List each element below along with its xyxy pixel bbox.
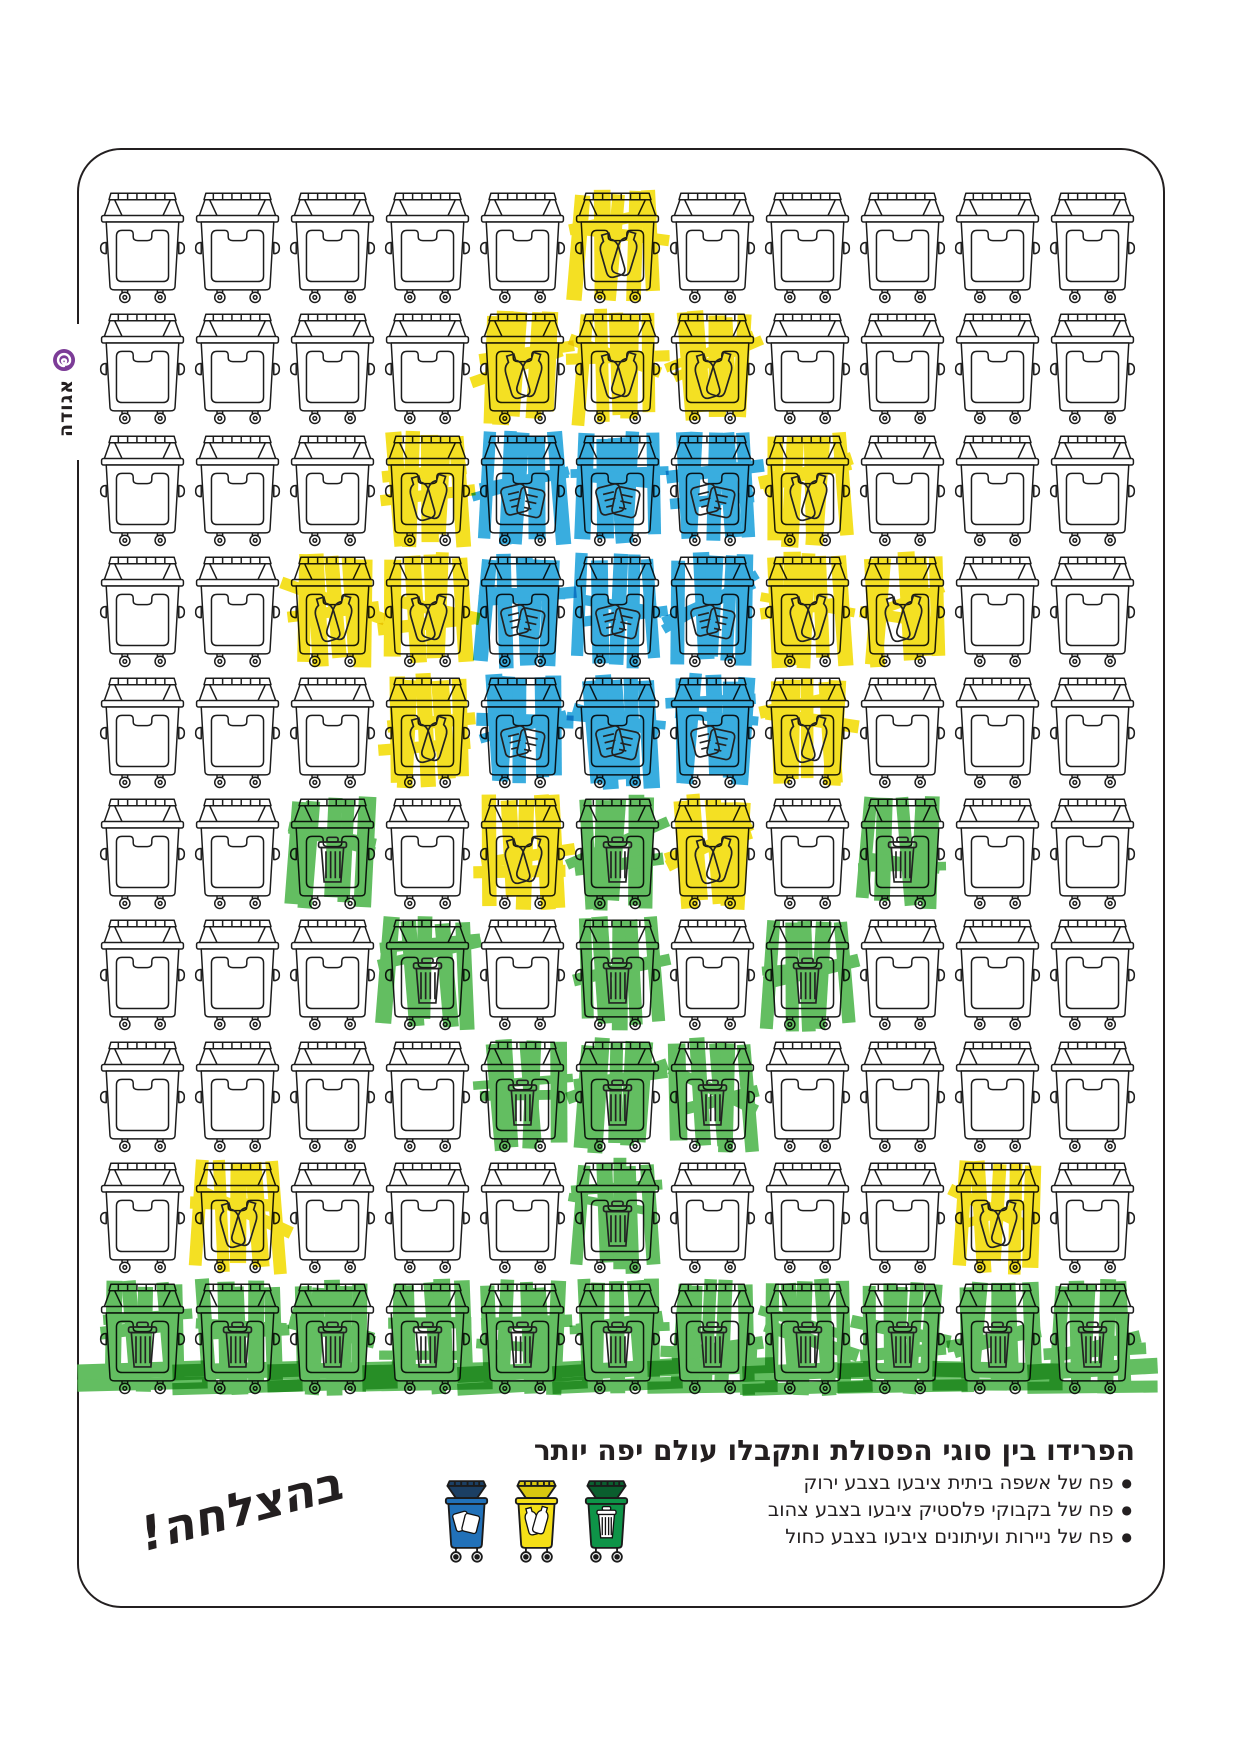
bin-cell-r3c3 [285,428,380,549]
bin-cell-r2c8 [760,307,855,428]
bin-cell-r1c2 [190,186,285,307]
bin-cell-r4c1 [95,550,190,671]
bin-cell-r1c7 [665,186,760,307]
bin-cell-r5c6 [570,671,665,792]
bin-cell-r3c5 [475,428,570,549]
bin-cell-r3c2 [190,428,285,549]
bin-cell-r4c4 [380,550,475,671]
bin-cell-r7c1 [95,913,190,1034]
bin-cell-r9c8 [760,1156,855,1277]
bin-cell-r2c9 [855,307,950,428]
bin-cell-r1c3 [285,186,380,307]
bin-cell-r1c9 [855,186,950,307]
bin-cell-r2c1 [95,307,190,428]
bin-cell-r5c1 [95,671,190,792]
bins-grid [95,186,1140,1398]
logo-text: אגודה [55,379,77,437]
bin-cell-r1c6 [570,186,665,307]
spiral-icon [51,347,81,373]
bin-cell-r5c9 [855,671,950,792]
bin-cell-r4c10 [950,550,1045,671]
bin-cell-r8c3 [285,1034,380,1155]
bullet-list: ● פח של אשפה ביתית ציבעו בצבע ירוק ● פח … [768,1469,1132,1550]
bin-cell-r9c10 [950,1156,1045,1277]
bin-cell-r10c11 [1045,1277,1140,1398]
bin-cell-r9c5 [475,1156,570,1277]
bin-cell-r2c11 [1045,307,1140,428]
bin-cell-r3c8 [760,428,855,549]
bin-cell-r9c2 [190,1156,285,1277]
bullet-dot-icon: ● [1122,1477,1132,1489]
bin-cell-r1c8 [760,186,855,307]
legend-paper-bin [440,1479,493,1568]
bin-cell-r5c8 [760,671,855,792]
bin-cell-r7c10 [950,913,1045,1034]
bin-cell-r4c9 [855,550,950,671]
bin-cell-r4c5 [475,550,570,671]
bin-cell-r4c8 [760,550,855,671]
bin-cell-r7c5 [475,913,570,1034]
bin-cell-r2c10 [950,307,1045,428]
bin-cell-r7c2 [190,913,285,1034]
bin-cell-r8c1 [95,1034,190,1155]
bin-cell-r2c2 [190,307,285,428]
bin-cell-r9c1 [95,1156,190,1277]
bin-cell-r2c6 [570,307,665,428]
bullet-item-green: ● פח של אשפה ביתית ציבעו בצבע ירוק [768,1469,1132,1496]
bin-cell-r8c2 [190,1034,285,1155]
bin-cell-r6c9 [855,792,950,913]
bin-cell-r6c5 [475,792,570,913]
bin-cell-r7c9 [855,913,950,1034]
bin-cell-r6c4 [380,792,475,913]
bin-cell-r6c1 [95,792,190,913]
bin-cell-r1c1 [95,186,190,307]
bin-cell-r6c11 [1045,792,1140,913]
bin-cell-r8c10 [950,1034,1045,1155]
bin-cell-r9c9 [855,1156,950,1277]
bullet-item-blue: ● פח של ניירות ועיתונים ציבעו בצבע כחול [768,1523,1132,1550]
bin-cell-r1c4 [380,186,475,307]
bin-cell-r7c6 [570,913,665,1034]
org-logo: אגודה [40,324,92,460]
bullet-item-yellow: ● פח של בקבוקי פלסטיק ציבעו בצבע צהוב [768,1496,1132,1523]
bin-cell-r6c6 [570,792,665,913]
bullet-text: פח של בקבוקי פלסטיק ציבעו בצבע צהוב [768,1498,1114,1521]
bin-cell-r4c2 [190,550,285,671]
bin-cell-r5c11 [1045,671,1140,792]
bin-cell-r9c6 [570,1156,665,1277]
bin-cell-r5c3 [285,671,380,792]
bin-cell-r3c6 [570,428,665,549]
bin-cell-r5c10 [950,671,1045,792]
bin-cell-r8c8 [760,1034,855,1155]
bin-cell-r6c7 [665,792,760,913]
recycling-poster: אגודה [0,0,1240,1754]
bin-cell-r5c7 [665,671,760,792]
legend-plastic-bin [510,1479,563,1568]
bin-cell-r1c11 [1045,186,1140,307]
bin-cell-r9c11 [1045,1156,1140,1277]
poster-title: הפרידו בין סוגי הפסולת ותקבלו עולם יפה י… [534,1434,1135,1467]
bin-cell-r5c2 [190,671,285,792]
bin-cell-r8c5 [475,1034,570,1155]
bullet-text: פח של אשפה ביתית ציבעו בצבע ירוק [804,1471,1114,1494]
bin-cell-r3c7 [665,428,760,549]
legend-household-bin [580,1479,633,1568]
bin-cell-r8c9 [855,1034,950,1155]
bin-cell-r8c6 [570,1034,665,1155]
bin-cell-r1c10 [950,186,1045,307]
bin-cell-r7c8 [760,913,855,1034]
bin-cell-r7c11 [1045,913,1140,1034]
bin-cell-r4c7 [665,550,760,671]
bin-cell-r3c10 [950,428,1045,549]
bin-cell-r3c4 [380,428,475,549]
bin-cell-r3c9 [855,428,950,549]
bin-cell-r2c3 [285,307,380,428]
bullet-dot-icon: ● [1122,1531,1132,1543]
bin-cell-r7c7 [665,913,760,1034]
bin-cell-r7c3 [285,913,380,1034]
bin-cell-r2c5 [475,307,570,428]
bin-cell-r6c8 [760,792,855,913]
bin-cell-r5c4 [380,671,475,792]
bin-cell-r8c7 [665,1034,760,1155]
bin-cell-r2c4 [380,307,475,428]
bin-cell-r1c5 [475,186,570,307]
bin-cell-r8c11 [1045,1034,1140,1155]
bin-cell-r4c3 [285,550,380,671]
bin-cell-r5c5 [475,671,570,792]
bin-cell-r6c2 [190,792,285,913]
bin-cell-r10c6 [570,1277,665,1398]
bullet-dot-icon: ● [1122,1504,1132,1516]
legend-bins [440,1479,633,1568]
bullet-text: פח של ניירות ועיתונים ציבעו בצבע כחול [785,1525,1113,1548]
bin-cell-r9c3 [285,1156,380,1277]
bin-cell-r9c4 [380,1156,475,1277]
bin-cell-r2c7 [665,307,760,428]
bin-cell-r6c3 [285,792,380,913]
bin-cell-r7c4 [380,913,475,1034]
bin-cell-r3c11 [1045,428,1140,549]
bin-cell-r9c7 [665,1156,760,1277]
bin-cell-r10c8 [760,1277,855,1398]
bin-cell-r4c6 [570,550,665,671]
bin-cell-r3c1 [95,428,190,549]
bin-cell-r6c10 [950,792,1045,913]
bin-cell-r4c11 [1045,550,1140,671]
bin-cell-r8c4 [380,1034,475,1155]
